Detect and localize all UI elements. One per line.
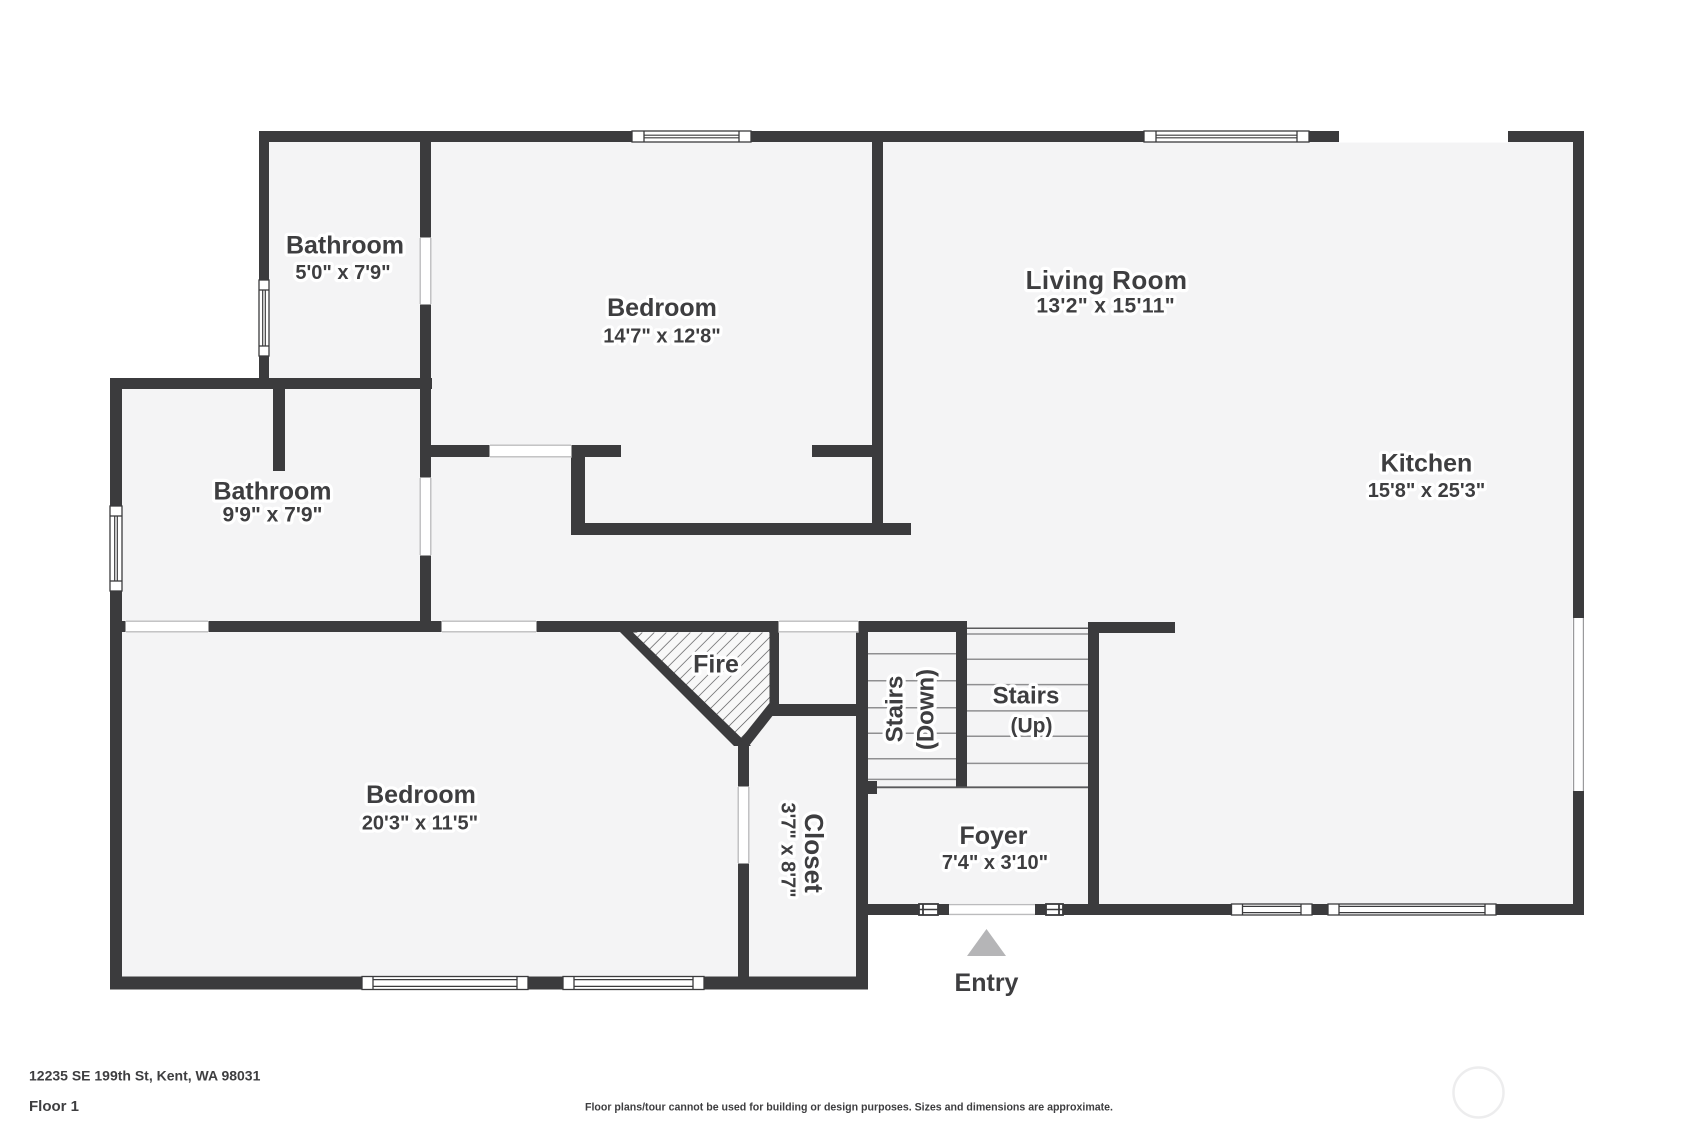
svg-text:13'2" x 15'11": 13'2" x 15'11" <box>1036 295 1175 318</box>
svg-text:7'4" x 3'10": 7'4" x 3'10" <box>942 852 1048 874</box>
svg-text:15'8" x 25'3": 15'8" x 25'3" <box>1368 480 1485 502</box>
svg-text:14'7" x 12'8": 14'7" x 12'8" <box>603 326 720 348</box>
svg-text:5'0" x 7'9": 5'0" x 7'9" <box>295 262 390 284</box>
svg-text:3'7" x 8'7": 3'7" x 8'7" <box>777 802 799 897</box>
svg-text:Stairs: Stairs <box>993 683 1060 710</box>
svg-text:Stairs: Stairs <box>882 676 909 743</box>
svg-text:Kitchen: Kitchen <box>1381 450 1473 478</box>
svg-text:Bathroom: Bathroom <box>213 478 331 506</box>
svg-text:20'3" x 11'5": 20'3" x 11'5" <box>362 813 478 835</box>
svg-text:Fire: Fire <box>693 651 739 679</box>
svg-text:(Down): (Down) <box>913 669 940 750</box>
svg-text:Foyer: Foyer <box>959 822 1027 850</box>
svg-text:Bedroom: Bedroom <box>366 781 476 809</box>
svg-text:Closet: Closet <box>799 813 829 893</box>
svg-text:12235 SE 199th St, Kent, WA 98: 12235 SE 199th St, Kent, WA 98031 <box>29 1068 261 1084</box>
svg-text:Living Room: Living Room <box>1026 265 1188 295</box>
svg-text:9'9" x 7'9": 9'9" x 7'9" <box>223 504 323 527</box>
svg-text:Bathroom: Bathroom <box>286 232 404 260</box>
svg-text:Bedroom: Bedroom <box>607 294 717 322</box>
svg-text:Entry: Entry <box>955 969 1019 997</box>
svg-text:Floor 1: Floor 1 <box>29 1098 79 1115</box>
svg-text:(Up): (Up) <box>1011 715 1053 738</box>
svg-text:Floor plans/tour cannot be use: Floor plans/tour cannot be used for buil… <box>585 1102 1113 1114</box>
